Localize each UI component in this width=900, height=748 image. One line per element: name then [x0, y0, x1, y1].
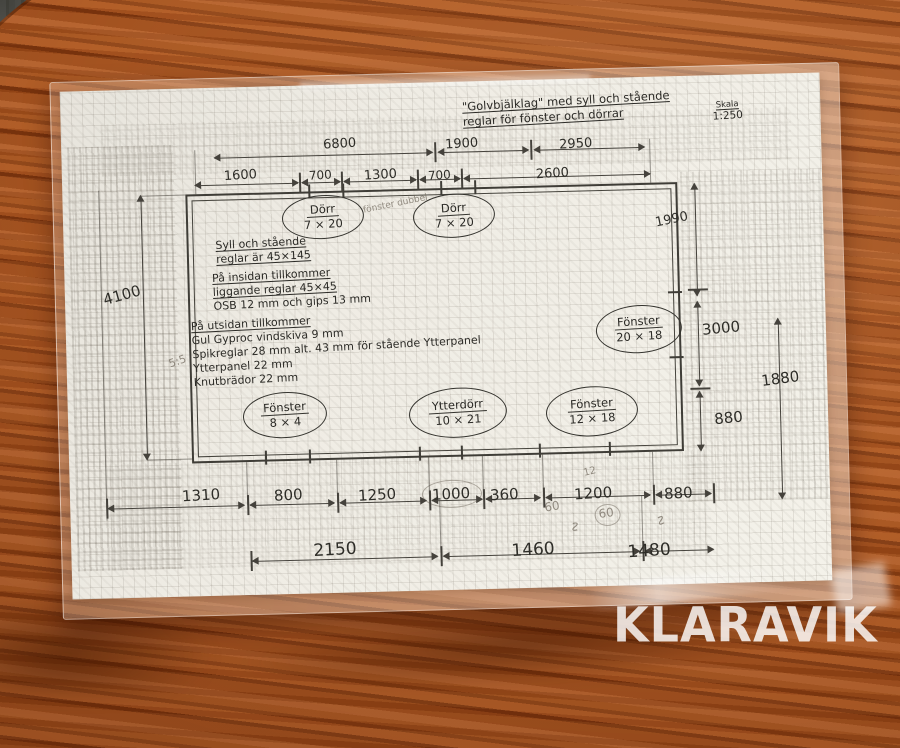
pencil-squiggle: ∿ — [565, 518, 585, 536]
dim-line — [140, 196, 148, 460]
ext-line — [482, 456, 484, 499]
dim-1310: 1310 — [181, 485, 220, 505]
ext-line — [652, 452, 654, 495]
opening-tick — [609, 442, 611, 456]
dim-880r: 880 — [713, 408, 743, 429]
drawing-title: "Golvbjälklag" med syll och stående regl… — [462, 88, 671, 130]
dim-700a: 700 — [308, 167, 332, 182]
dim-1600: 1600 — [223, 167, 257, 184]
opening-tick — [668, 291, 682, 293]
dim-tick — [417, 170, 419, 190]
ext-line — [336, 460, 338, 503]
dim-1480: 1480 — [627, 540, 671, 563]
opening-tick — [309, 449, 311, 463]
note-inside: På insidan tillkommer liggande reglar 45… — [212, 264, 371, 314]
dim-line — [697, 302, 700, 386]
dim-6800: 6800 — [323, 136, 357, 153]
dim-2150: 2150 — [313, 539, 357, 562]
pencil-side-note: 5:5 — [167, 352, 188, 370]
dim-2950: 2950 — [559, 136, 593, 153]
dim-tick — [688, 288, 708, 290]
pencil-circle — [594, 504, 621, 527]
dim-4100: 4100 — [101, 281, 143, 309]
dim-line — [214, 152, 432, 159]
scale-block: Skala 1:250 — [712, 99, 744, 123]
ext-line — [140, 195, 185, 197]
ext-line — [147, 458, 192, 460]
ext-line — [98, 191, 107, 521]
klaravik-watermark: KLARAVIK — [613, 597, 878, 653]
opening-tick — [419, 447, 421, 461]
dim-tick — [713, 483, 715, 503]
dim-line — [694, 184, 698, 296]
dim-880b: 880 — [664, 483, 694, 503]
note-sill: Syll och stående reglar är 45×145 — [215, 234, 311, 267]
dim-1300: 1300 — [363, 167, 397, 184]
ext-line — [439, 500, 441, 556]
opening-tick — [461, 446, 463, 460]
dim-2600: 2600 — [536, 165, 570, 182]
dim-tick — [106, 499, 108, 519]
ext-line — [428, 457, 430, 500]
dim-tick — [434, 142, 436, 162]
opening-tick — [539, 444, 541, 458]
dim-line — [108, 505, 244, 509]
dim-3000: 3000 — [701, 317, 741, 339]
ext-line — [246, 462, 248, 505]
dim-tick — [299, 173, 301, 193]
dim-tick — [250, 551, 252, 571]
dim-800: 800 — [273, 485, 303, 505]
dim-tick — [341, 172, 343, 192]
opening-tick — [670, 356, 684, 358]
note-outside: På utsidan tillkommer Gul Gyproc vindski… — [191, 305, 483, 390]
dim-1900: 1900 — [445, 136, 479, 153]
dim-360: 360 — [490, 485, 520, 505]
opening-label: Fönster — [260, 400, 310, 417]
dim-tick — [461, 169, 463, 189]
ext-line — [542, 455, 544, 498]
dim-tick — [530, 140, 532, 160]
ext-line — [649, 139, 651, 183]
opening-tick — [440, 181, 442, 195]
opening-size: 10 × 21 — [435, 411, 482, 428]
drawing-paper: "Golvbjälklag" med syll och stående regl… — [60, 72, 833, 599]
dim-line — [699, 392, 701, 451]
dim-line — [195, 183, 298, 187]
opening-size: 8 × 4 — [269, 414, 301, 430]
dim-tick — [690, 387, 710, 389]
dim-1460: 1460 — [511, 539, 555, 562]
opening-size: 7 × 20 — [435, 215, 475, 231]
opening-size: 12 × 18 — [569, 410, 616, 427]
ext-line — [641, 495, 643, 551]
ext-line — [194, 150, 196, 194]
dim-700b: 700 — [428, 167, 452, 182]
dim-line — [778, 319, 784, 499]
pencil-mark-12: 12 — [582, 465, 597, 479]
dim-1000: 1000 — [431, 484, 470, 504]
opening-tick — [474, 180, 476, 194]
scale-value: 1:250 — [712, 109, 743, 123]
opening-size: 20 × 18 — [616, 328, 663, 345]
dim-1200: 1200 — [574, 483, 613, 503]
opening-tick — [265, 451, 267, 465]
opening-size: 7 × 20 — [304, 216, 344, 232]
dim-1250: 1250 — [357, 485, 396, 505]
dim-1880: 1880 — [760, 367, 800, 390]
pencil-squiggle: ∿ — [651, 511, 671, 530]
